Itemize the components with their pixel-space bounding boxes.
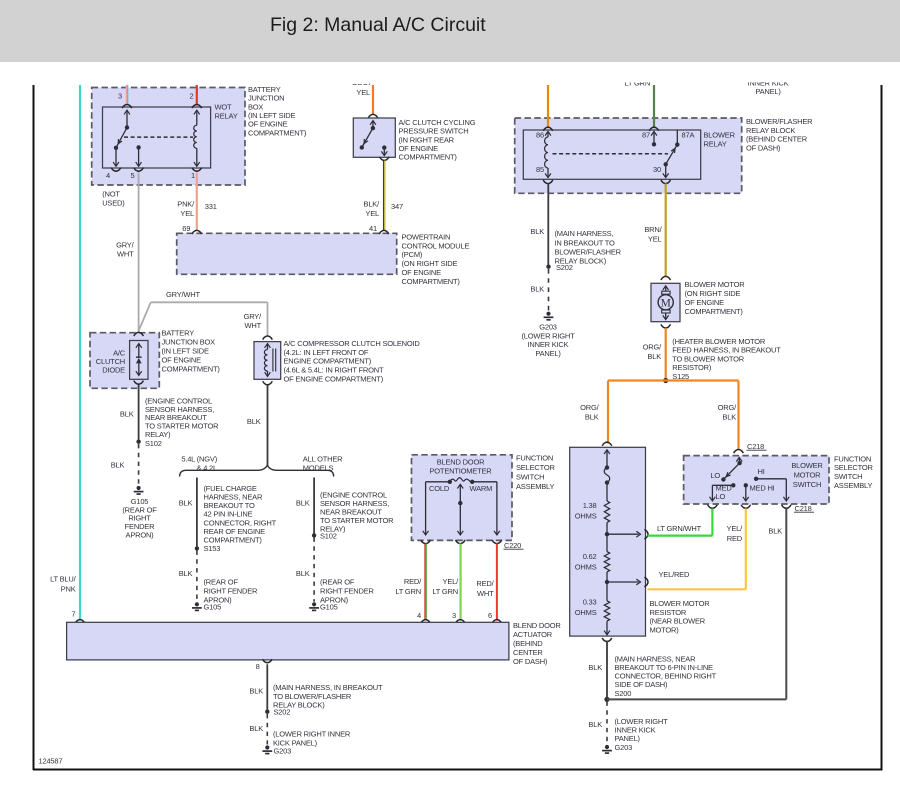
svg-text:LT BLU/: LT BLU/ [50,574,77,583]
svg-text:BRN/: BRN/ [644,225,662,234]
svg-text:OHMS: OHMS [575,608,597,617]
svg-text:87: 87 [642,130,650,139]
svg-text:7: 7 [71,609,75,618]
svg-text:BLK: BLK [296,498,310,507]
svg-text:41: 41 [369,224,377,233]
svg-text:C220: C220 [504,541,521,550]
svg-text:(BEHIND: (BEHIND [513,639,543,648]
svg-text:BLOWER MOTOR: BLOWER MOTOR [650,599,711,608]
svg-text:JUNCTION: JUNCTION [248,94,284,103]
svg-text:TO BLOWER MOTOR: TO BLOWER MOTOR [672,354,745,363]
svg-text:ORG/: ORG/ [643,342,662,351]
svg-text:MED HI: MED HI [750,483,775,492]
svg-text:BLK: BLK [247,417,261,426]
svg-text:G203: G203 [274,746,292,755]
svg-text:APRON): APRON) [126,531,155,540]
svg-text:BLOWER/FLASHER: BLOWER/FLASHER [746,117,813,126]
svg-text:WHT: WHT [245,321,262,330]
svg-text:ALL OTHER: ALL OTHER [303,455,343,464]
svg-text:0.62: 0.62 [583,552,597,561]
svg-text:BLK: BLK [249,724,263,733]
svg-text:IN BREAKOUT TO: IN BREAKOUT TO [555,238,615,247]
svg-text:(IN LEFT SIDE: (IN LEFT SIDE [248,111,295,120]
svg-text:WHT: WHT [477,589,494,598]
svg-text:GRY/: GRY/ [116,240,135,249]
svg-text:BLK: BLK [722,412,736,421]
svg-text:BLEND DOOR: BLEND DOOR [513,621,561,630]
svg-text:YEL/: YEL/ [443,577,460,586]
svg-text:OF ENGINE: OF ENGINE [402,268,442,277]
svg-text:PANEL): PANEL) [755,87,781,96]
svg-text:BLK: BLK [530,227,544,236]
svg-text:85: 85 [536,165,544,174]
svg-text:S153: S153 [204,544,221,553]
svg-text:S200: S200 [615,689,632,698]
svg-text:4: 4 [417,611,421,620]
svg-text:POTENTIOMETER: POTENTIOMETER [430,466,493,475]
svg-text:S202: S202 [274,708,291,717]
svg-text:MOTOR: MOTOR [794,471,822,480]
svg-text:BLK: BLK [179,498,193,507]
svg-text:BLK/: BLK/ [364,200,381,209]
svg-text:HI: HI [758,467,765,476]
svg-text:(PCM): (PCM) [402,250,423,259]
svg-text:5: 5 [131,171,135,180]
svg-text:COMPARTMENT): COMPARTMENT) [399,153,458,162]
svg-text:OF ENGINE COMPARTMENT): OF ENGINE COMPARTMENT) [284,375,384,384]
svg-text:YEL: YEL [365,209,379,218]
svg-text:SELECTOR: SELECTOR [834,463,873,472]
svg-text:LT GRN: LT GRN [432,587,458,596]
svg-text:BLOWER: BLOWER [791,461,823,470]
svg-text:OHMS: OHMS [575,562,597,571]
svg-text:BATTERY: BATTERY [248,85,281,94]
svg-text:PNK/: PNK/ [177,200,195,209]
svg-text:4: 4 [106,171,110,180]
svg-text:(REAR OF: (REAR OF [320,577,355,586]
svg-text:LO: LO [710,471,720,480]
svg-text:69: 69 [182,224,190,233]
svg-text:RELAY BLOCK: RELAY BLOCK [746,126,795,135]
svg-text:BLK: BLK [530,284,544,293]
svg-text:BLK: BLK [111,460,125,469]
svg-text:MOTOR): MOTOR) [650,626,680,635]
svg-text:S102: S102 [320,531,337,540]
svg-text:OHMS: OHMS [575,511,597,520]
svg-text:YEL: YEL [356,88,370,97]
svg-text:124587: 124587 [39,756,63,765]
svg-text:(4.6L & 5.4L: IN RIGHT FRONT: (4.6L & 5.4L: IN RIGHT FRONT [284,366,384,375]
svg-text:G105: G105 [320,602,338,611]
svg-text:RELAY: RELAY [215,111,238,120]
svg-text:RIGHT FENDER: RIGHT FENDER [320,587,374,596]
svg-text:BLOWER/FLASHER: BLOWER/FLASHER [555,248,622,257]
svg-text:GRY/: GRY/ [244,312,263,321]
svg-text:(BEHIND CENTER: (BEHIND CENTER [746,135,808,144]
svg-text:RELAY: RELAY [704,139,727,148]
svg-text:(NOT: (NOT [102,190,120,199]
svg-text:BLOWER MOTOR: BLOWER MOTOR [685,280,746,289]
svg-text:3: 3 [452,611,456,620]
svg-text:BOX: BOX [248,102,263,111]
svg-text:OF ENGINE: OF ENGINE [685,298,725,307]
svg-text:LO: LO [716,492,726,501]
svg-text:BLK: BLK [588,720,602,729]
svg-text:PNK: PNK [61,584,76,593]
svg-text:PANEL): PANEL) [615,734,641,743]
svg-text:BLK: BLK [588,663,602,672]
svg-text:(LOWER RIGHT INNER: (LOWER RIGHT INNER [273,730,351,739]
svg-text:BLK: BLK [768,526,782,535]
svg-text:BLK: BLK [647,352,661,361]
svg-text:PANEL): PANEL) [535,349,561,358]
svg-text:DIODE: DIODE [102,366,125,375]
svg-text:BATTERY: BATTERY [162,329,195,338]
svg-text:MODELS: MODELS [303,463,334,472]
svg-text:SWITCH: SWITCH [793,480,821,489]
svg-text:SWITCH: SWITCH [834,472,862,481]
svg-text:RESISTOR): RESISTOR) [672,363,712,372]
svg-text:INNER KICK: INNER KICK [528,340,569,349]
svg-text:(REAR OF: (REAR OF [204,577,239,586]
svg-text:1: 1 [191,171,195,180]
svg-text:BLK: BLK [120,409,134,418]
svg-text:YEL/RED: YEL/RED [659,570,690,579]
svg-text:RELAY): RELAY) [145,430,171,439]
svg-text:C218: C218 [747,442,764,451]
svg-text:OF ENGINE: OF ENGINE [162,355,202,364]
svg-text:WARM: WARM [470,484,493,493]
svg-text:CENTER: CENTER [513,648,543,657]
svg-text:POWERTRAIN: POWERTRAIN [402,232,451,241]
svg-text:ENGINE COMPARTMENT): ENGINE COMPARTMENT) [284,357,372,366]
svg-text:FEED HARNESS, IN BREAKOUT: FEED HARNESS, IN BREAKOUT [672,346,781,355]
svg-text:331: 331 [205,202,217,211]
svg-text:8: 8 [256,662,260,671]
svg-text:A/C COMPRESSOR CLUTCH SOLENOID: A/C COMPRESSOR CLUTCH SOLENOID [284,339,421,348]
svg-text:(4.2L: IN LEFT FRONT OF: (4.2L: IN LEFT FRONT OF [284,348,369,357]
svg-text:86: 86 [536,130,544,139]
svg-text:5.4L (NGV): 5.4L (NGV) [181,455,217,464]
svg-text:6: 6 [488,611,492,620]
svg-text:YEL: YEL [648,234,662,243]
svg-text:BLK: BLK [249,686,263,695]
svg-text:BLK: BLK [179,569,193,578]
svg-text:0.33: 0.33 [583,597,597,606]
svg-text:RED: RED [727,534,743,543]
svg-text:RESISTOR: RESISTOR [650,608,687,617]
svg-text:G203: G203 [615,743,633,752]
svg-text:OF DASH): OF DASH) [513,657,548,666]
svg-text:G203: G203 [539,323,557,332]
svg-text:BLK: BLK [296,569,310,578]
svg-text:(HEATER BLOWER MOTOR: (HEATER BLOWER MOTOR [672,337,766,346]
svg-text:BLEND DOOR: BLEND DOOR [437,457,485,466]
svg-text:(ON RIGHT SIDE: (ON RIGHT SIDE [402,259,458,268]
svg-text:(IN RIGHT REAR: (IN RIGHT REAR [399,135,455,144]
svg-text:SELECTOR: SELECTOR [516,463,555,472]
svg-text:FUNCTION: FUNCTION [834,454,871,463]
svg-text:COMPARTMENT): COMPARTMENT) [162,364,221,373]
svg-text:JUNCTION BOX: JUNCTION BOX [162,338,216,347]
svg-text:ACTUATOR: ACTUATOR [513,630,553,639]
svg-text:LT GRN: LT GRN [395,587,421,596]
svg-text:ASSEMBLY: ASSEMBLY [516,482,554,491]
svg-text:(LOWER RIGHT: (LOWER RIGHT [521,331,575,340]
svg-text:TO BLOWER/FLASHER: TO BLOWER/FLASHER [273,692,352,701]
svg-text:3: 3 [118,91,122,100]
svg-text:COMPARTMENT): COMPARTMENT) [248,128,307,137]
svg-text:PRESSURE SWITCH: PRESSURE SWITCH [399,127,469,136]
svg-text:RIGHT FENDER: RIGHT FENDER [204,587,258,596]
svg-text:Fig 2: Manual A/C Circuit: Fig 2: Manual A/C Circuit [270,14,486,36]
svg-text:(IN LEFT SIDE: (IN LEFT SIDE [162,347,209,356]
svg-text:M: M [661,298,671,310]
svg-text:YEL: YEL [180,209,194,218]
svg-text:COLD: COLD [429,484,450,493]
svg-text:OF DASH): OF DASH) [746,144,781,153]
svg-text:(ON RIGHT SIDE: (ON RIGHT SIDE [685,289,741,298]
svg-text:COMPARTMENT): COMPARTMENT) [402,277,461,286]
svg-text:G105: G105 [204,602,222,611]
svg-text:OF ENGINE: OF ENGINE [399,144,439,153]
svg-text:SIDE OF DASH): SIDE OF DASH) [615,680,669,689]
svg-text:(MAIN HARNESS,: (MAIN HARNESS, [555,229,614,238]
svg-text:347: 347 [391,202,403,211]
svg-text:ORG/: ORG/ [718,403,737,412]
svg-text:(MAIN HARNESS, IN BREAKOUT: (MAIN HARNESS, IN BREAKOUT [273,683,383,692]
svg-text:(NEAR BLOWER: (NEAR BLOWER [650,617,706,626]
svg-text:30: 30 [653,165,661,174]
svg-text:BLK: BLK [585,412,599,421]
svg-text:ORG/: ORG/ [580,403,599,412]
svg-text:WHT: WHT [117,249,134,258]
svg-text:& 4.2L: & 4.2L [197,463,218,472]
svg-text:OF ENGINE: OF ENGINE [248,120,288,129]
svg-text:SWITCH: SWITCH [516,473,544,482]
svg-text:2: 2 [190,91,194,100]
svg-text:ASSEMBLY: ASSEMBLY [834,481,872,490]
svg-text:C218: C218 [795,504,812,513]
svg-text:GRY/WHT: GRY/WHT [166,290,200,299]
svg-text:1.38: 1.38 [583,501,597,510]
svg-text:FUNCTION: FUNCTION [516,454,553,463]
svg-text:CONTROL MODULE: CONTROL MODULE [402,241,470,250]
svg-text:USED): USED) [102,198,125,207]
svg-text:WOT: WOT [215,102,233,111]
svg-text:COMPARTMENT): COMPARTMENT) [685,307,744,316]
svg-text:YEL/: YEL/ [727,524,744,533]
svg-text:S102: S102 [145,439,162,448]
svg-text:RED/: RED/ [476,579,494,588]
svg-text:RED/: RED/ [404,577,422,586]
svg-text:BLOWER: BLOWER [704,130,736,139]
svg-text:87A: 87A [682,130,695,139]
svg-text:A/C CLUTCH CYCLING: A/C CLUTCH CYCLING [399,118,476,127]
svg-text:S202: S202 [556,263,573,272]
svg-text:LT GRN/WHT: LT GRN/WHT [657,524,702,533]
